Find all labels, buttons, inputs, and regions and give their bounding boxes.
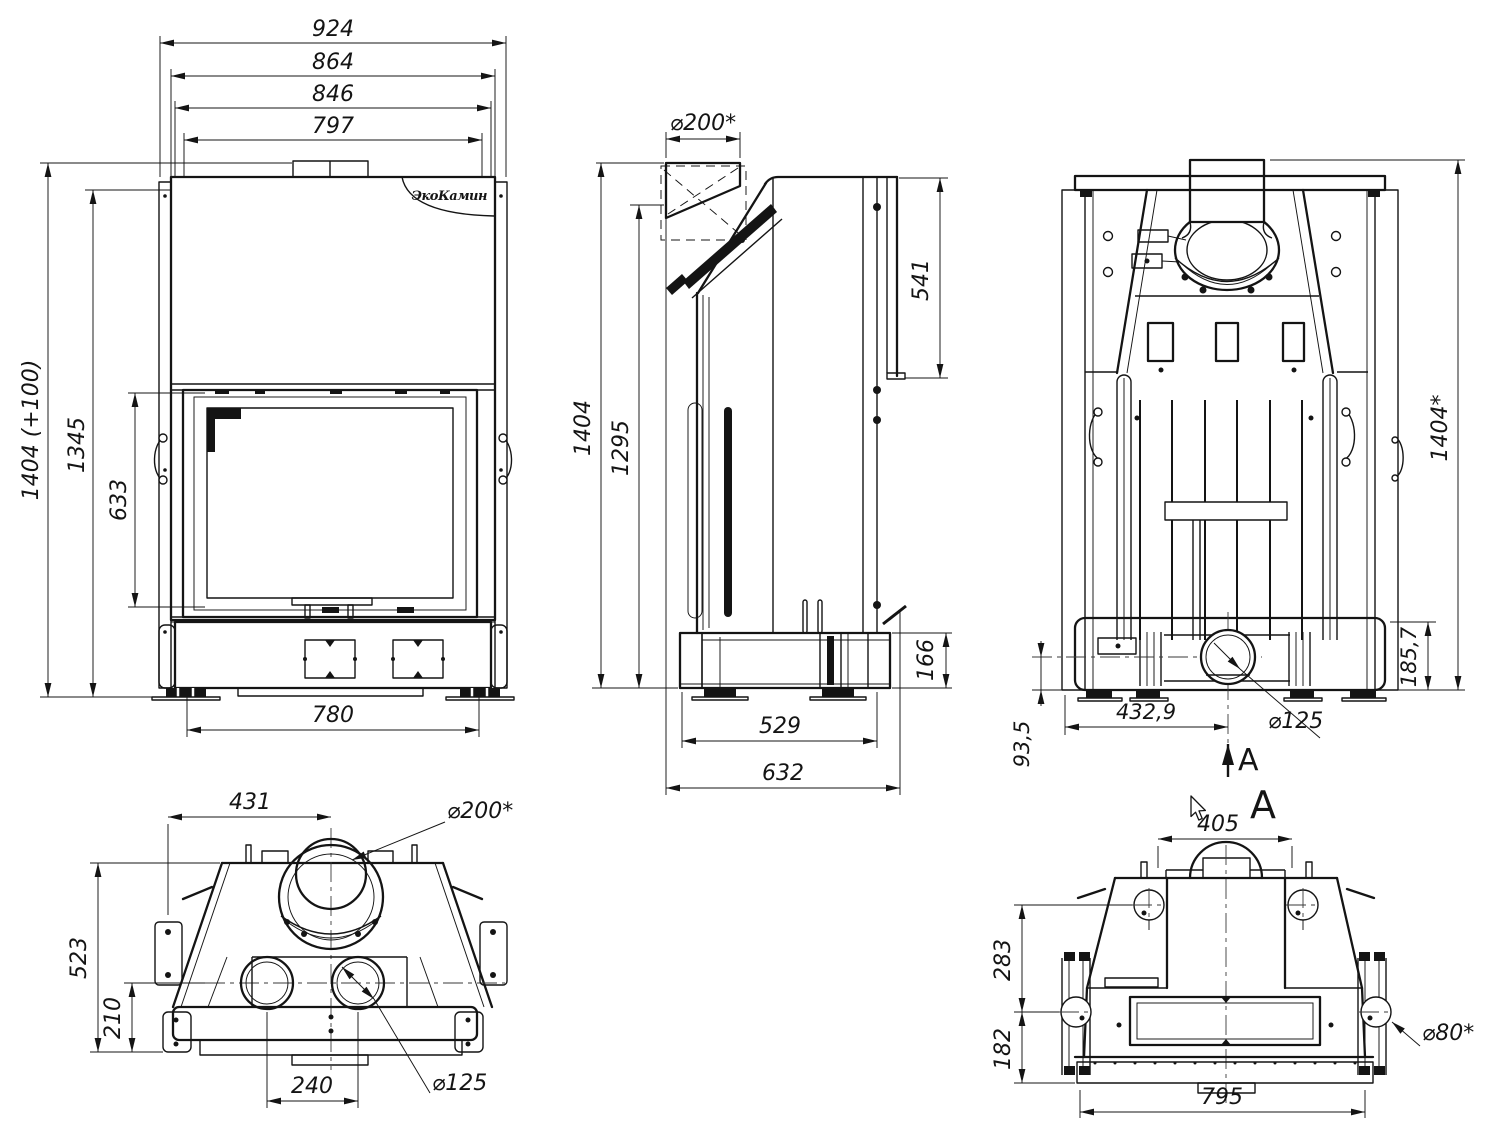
section-arrow-label: A bbox=[1238, 743, 1259, 778]
back-right-handle bbox=[1344, 410, 1355, 460]
dim-section-hole-diameter: ⌀80* bbox=[1422, 1021, 1474, 1046]
section-view: 405 283 182 ⌀80* 795 bbox=[991, 812, 1474, 1118]
side-view: ⌀200* 541 166 1404 1295 529 632 bbox=[571, 111, 952, 795]
dim-top-outlet-spacing: 240 bbox=[291, 1074, 333, 1099]
right-handle bbox=[501, 436, 512, 482]
dim-top-flue-offset: 431 bbox=[229, 790, 271, 815]
flue-mount-flange bbox=[683, 204, 777, 289]
back-cross-bar bbox=[1165, 502, 1287, 520]
door-latch bbox=[292, 598, 372, 605]
dim-top-overall-depth: 523 bbox=[67, 937, 92, 979]
dim-side-flue-diameter: ⌀200* bbox=[670, 111, 736, 136]
dim-top-flue-diameter: ⌀200* bbox=[447, 799, 513, 824]
dim-side-base-depth: 529 bbox=[759, 714, 801, 739]
left-handle bbox=[154, 436, 165, 482]
damper-handle bbox=[666, 274, 688, 295]
dim-side-flue-height: 1295 bbox=[609, 420, 634, 476]
side-handle-bar bbox=[724, 407, 732, 617]
dim-section-lower-height: 182 bbox=[991, 1028, 1016, 1070]
dim-back-overall-height: 1404* bbox=[1428, 395, 1453, 462]
brand-logo: ЭкоКамин bbox=[412, 189, 487, 204]
fireplace-technical-drawing: ЭкоКамин bbox=[0, 0, 1498, 1131]
section-grate-opening bbox=[1130, 997, 1320, 1045]
dim-back-outlet-offset: 432,9 bbox=[1116, 700, 1176, 724]
dim-side-overall-height: 1404 bbox=[571, 400, 596, 456]
dim-front-overall-width: 924 bbox=[312, 17, 354, 42]
front-view-dimensions: 924 864 846 797 1404 (+100) 1345 633 780 bbox=[19, 17, 506, 737]
top-view-body bbox=[155, 828, 507, 1070]
dim-front-door-width: 797 bbox=[312, 114, 354, 139]
technical-drawing-page: ЭкоКамин bbox=[0, 0, 1498, 1131]
door-frame bbox=[183, 390, 477, 617]
back-left-handle bbox=[1089, 410, 1100, 460]
dim-back-base-height: 185,7 bbox=[1397, 626, 1421, 687]
glass-corner-mark bbox=[207, 408, 241, 452]
dim-front-glass-height: 633 bbox=[107, 479, 132, 521]
flue-outlet bbox=[666, 163, 740, 218]
dim-front-base-width: 780 bbox=[312, 703, 354, 728]
section-view-body bbox=[1059, 842, 1393, 1108]
dim-side-upper-depth: 541 bbox=[909, 259, 934, 301]
dim-front-upper-height: 1345 bbox=[65, 417, 90, 473]
section-view-label: A bbox=[1250, 783, 1276, 827]
door-glass bbox=[207, 408, 453, 598]
dim-back-outlet-diameter: ⌀125 bbox=[1268, 709, 1323, 734]
dim-back-outlet-height: 93,5 bbox=[1010, 721, 1034, 768]
front-view: ЭкоКамин bbox=[19, 17, 514, 737]
side-view-body bbox=[661, 163, 906, 700]
dim-top-outlet-diameter: ⌀125 bbox=[432, 1071, 487, 1096]
dim-side-rear-base-height: 166 bbox=[914, 639, 939, 681]
top-view-dimensions: 431 ⌀200* 523 210 240 ⌀125 bbox=[67, 790, 513, 1108]
top-view: 431 ⌀200* 523 210 240 ⌀125 bbox=[67, 790, 513, 1108]
dim-section-top-width: 405 bbox=[1197, 812, 1239, 837]
dim-section-base-width: 795 bbox=[1201, 1085, 1243, 1110]
front-view-body: ЭкоКамин bbox=[152, 161, 514, 700]
back-view-body bbox=[1032, 160, 1403, 775]
side-base bbox=[680, 633, 890, 688]
dim-front-overall-height: 1404 (+100) bbox=[19, 360, 44, 501]
dim-front-inner-width: 846 bbox=[312, 82, 354, 107]
top-front-band bbox=[173, 1007, 477, 1040]
dim-section-upper-height: 283 bbox=[991, 939, 1016, 981]
back-view: 1404* 185,7 93,5 432,9 ⌀125 bbox=[1010, 160, 1465, 775]
dim-top-front-depth: 210 bbox=[101, 997, 126, 1039]
dim-side-overall-depth: 632 bbox=[762, 761, 804, 786]
dim-front-body-width: 864 bbox=[312, 50, 354, 75]
